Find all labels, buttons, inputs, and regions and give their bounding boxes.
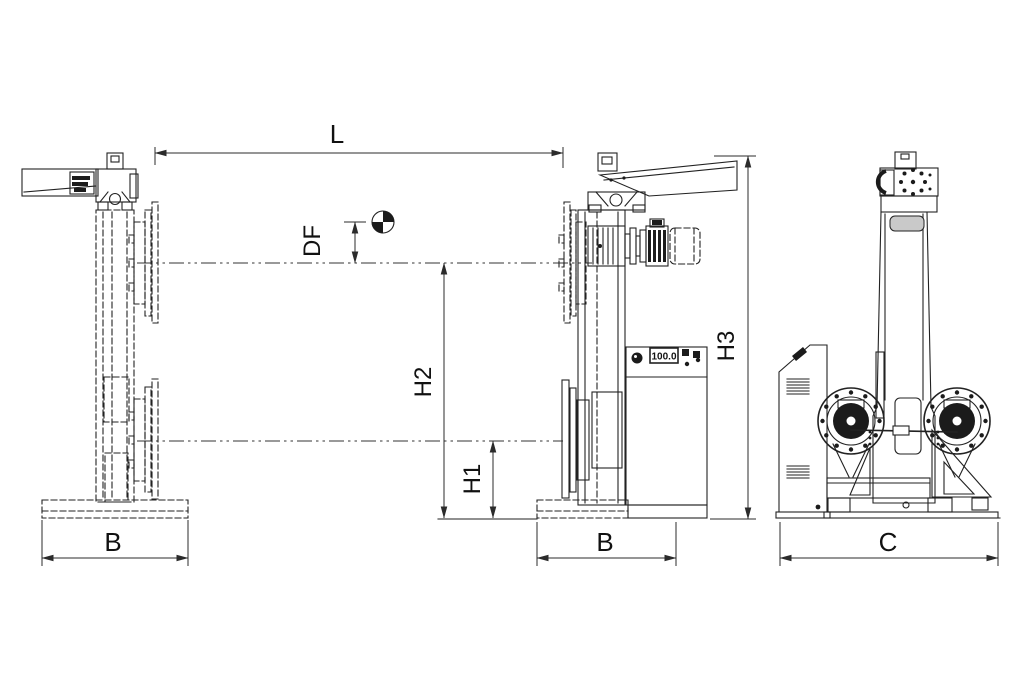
headstock-counterweight-arm (598, 153, 737, 196)
headstock-faceplate-lower (562, 380, 622, 498)
dimension-b-middle: B (537, 522, 676, 566)
dimension-label-b-middle: B (596, 527, 613, 557)
positioner-front-view (776, 152, 1000, 518)
vent-grille-icon (787, 379, 809, 394)
headstock-column (578, 210, 625, 505)
dimension-label-l: L (330, 119, 344, 149)
tailstock-faceplate-lower (129, 379, 158, 499)
tailstock-side-view (22, 153, 188, 518)
trunnion-pivot-icon (110, 194, 121, 205)
panel-indicator-dot (696, 358, 700, 362)
headstock-gearbox (646, 219, 668, 266)
base-gusset-right (932, 430, 991, 497)
dimension-h2: H2 (410, 263, 444, 518)
dimension-label-h1: H1 (459, 464, 486, 495)
dimension-c: C (780, 522, 998, 566)
front-head (878, 152, 938, 212)
tailstock-base (42, 500, 188, 518)
front-wheel-left (818, 388, 884, 454)
front-control-cabinet (776, 345, 830, 518)
headstock-head (588, 192, 645, 212)
headstock-base (537, 500, 707, 518)
dimension-l: L (155, 119, 563, 168)
tailstock-column (96, 210, 134, 502)
technical-drawing: 100.0 (0, 0, 1024, 683)
headstock-spindle-drive (588, 219, 700, 266)
dimension-df: DF (299, 211, 394, 263)
digital-readout-value: 100.0 (651, 352, 676, 363)
dimension-h1: H1 (459, 441, 493, 518)
base-gusset-left (850, 448, 870, 495)
dimension-label-c: C (879, 527, 898, 557)
trunnion-pivot-icon (610, 194, 622, 206)
panel-indicator-dot (685, 362, 689, 366)
dimension-b-left: B (42, 520, 188, 566)
brand-emblem-icon (632, 353, 643, 364)
dimension-label-df: DF (299, 225, 326, 257)
dimension-h3: H3 (710, 156, 756, 519)
drawing-canvas: 100.0 (0, 0, 1024, 683)
panel-button[interactable] (693, 351, 700, 358)
brand-emblem-highlight (634, 355, 637, 358)
front-wheel-right (924, 388, 990, 454)
headstock-control-cabinet: 100.0 (626, 347, 707, 505)
side-bearing-icon (878, 170, 894, 195)
dimension-label-b-left: B (104, 527, 121, 557)
center-of-gravity-icon (372, 211, 394, 233)
bolt-circle-icon (899, 168, 932, 196)
rotation-axis-centerlines (137, 263, 592, 441)
dimension-label-h3: H3 (713, 331, 740, 362)
tailstock-lift-motor (22, 169, 98, 196)
vent-grille-icon (787, 466, 809, 478)
panel-button[interactable] (682, 349, 689, 356)
dimension-label-h2: H2 (410, 367, 437, 398)
tailstock-head (96, 153, 138, 210)
front-column (873, 212, 935, 503)
headstock-motor (670, 228, 700, 264)
lift-slot (890, 216, 924, 231)
